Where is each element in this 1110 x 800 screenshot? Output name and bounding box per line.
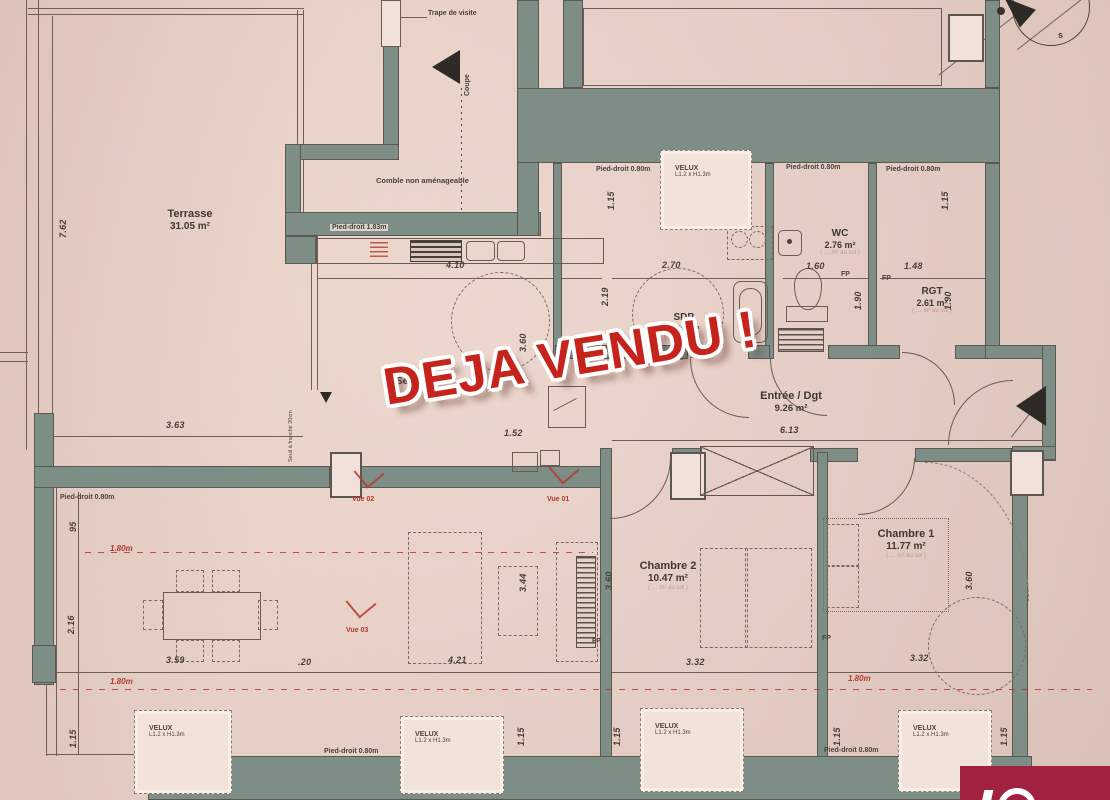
door-arc-entry [948, 380, 1013, 445]
dimension-label: 3.60 [604, 571, 614, 590]
velux-size: L1.2 x H1.3m [149, 732, 231, 738]
cooktop [410, 240, 462, 262]
roof-band [517, 88, 1000, 163]
velux-label: VELUX [655, 723, 743, 730]
door-arc-ch2 [610, 458, 671, 519]
section-arrow [432, 50, 460, 84]
dimension-label: 7.62 [58, 219, 68, 238]
dimension-label: 4.21 [448, 655, 467, 665]
wall-east [985, 163, 1000, 359]
section-label: Coupe [464, 74, 471, 96]
velux-window: VELUXL1.2 x H1.3m [640, 708, 744, 792]
upper-room-outline [583, 8, 942, 86]
dimension-label: 2.70 [662, 260, 681, 270]
line [46, 682, 47, 756]
line [56, 466, 57, 756]
dimension-label: 1.15 [606, 191, 616, 210]
compass-dot [997, 7, 1005, 15]
dim-line [880, 278, 985, 279]
pied-droit-label: Pied-droit 0.80m [886, 166, 940, 173]
sub: ( … m² au sol ) [858, 553, 954, 559]
pillow [827, 566, 859, 608]
wall [1012, 450, 1028, 760]
pied-droit-haut-label: Pied-droit 1.83m [330, 224, 388, 231]
duct-box [548, 386, 586, 428]
chair [258, 600, 278, 630]
dimension-label: 6.13 [780, 425, 799, 435]
room-wc: WC 2.76 m² ( … m² au sol ) [808, 228, 872, 256]
velux-label: VELUX [149, 725, 231, 732]
pillow [827, 524, 859, 566]
kitchen-red-marks [370, 242, 388, 258]
small-box [512, 452, 538, 472]
balcony-line [0, 361, 28, 362]
dimension-label: 1.15 [516, 727, 526, 746]
vanity-bowl [731, 231, 748, 248]
dim-line [78, 492, 79, 754]
hatch-label: Trape de visite [428, 10, 477, 17]
fp-label: FP [882, 275, 891, 282]
dimension-label: 4.10 [446, 260, 465, 270]
room-chambre2: Chambre 2 10.47 m² ( … m² au sol ) [618, 560, 718, 591]
closet [700, 446, 814, 496]
ar: 11.77 m² [858, 541, 954, 553]
access-hatch [381, 0, 401, 47]
wall [563, 0, 583, 88]
dimension-label: 1.52 [504, 428, 523, 438]
bed-line [745, 548, 748, 648]
velux-label: VELUX [415, 731, 503, 738]
dimension-label: 2.16 [66, 615, 76, 634]
room-rgt: RGT 2.61 m² ( … m² au sol ) [894, 286, 970, 314]
sink [466, 241, 495, 261]
dimension-label: 1.15 [999, 727, 1009, 746]
sink [497, 241, 525, 261]
pied-droit-label: Pied-droit 0.80m [324, 748, 378, 755]
pied-droit-label: Pied-droit 0.80m [596, 166, 650, 173]
velux-size: L1.2 x H1.3m [675, 172, 751, 178]
floor-plan: Coupe Trape de visite Comble non aménage… [0, 0, 1110, 800]
wall [383, 44, 399, 158]
nm: WC [808, 228, 872, 240]
nm: RGT [894, 286, 970, 298]
room-entree: Entrée / Dgt 9.26 m² [736, 390, 846, 414]
height-label: 1.80m [848, 674, 871, 683]
dim-line [55, 672, 1012, 673]
door-arc-rgt [902, 352, 955, 405]
vue-label: Vue 03 [346, 627, 368, 634]
compass-south-label: s [1058, 30, 1063, 40]
fp-label: FP [841, 271, 850, 278]
dimension-label: 1.15 [612, 727, 622, 746]
seuil-label: Seuil à franchir 20cm [288, 410, 294, 462]
dim-line [52, 16, 53, 436]
wall [32, 645, 56, 683]
velux-window: VELUXL1.2 x H1.3m [400, 716, 504, 794]
ar: 2.61 m² [894, 298, 970, 309]
dimension-label: 95 [68, 521, 78, 532]
nm: Entrée / Dgt [736, 390, 846, 403]
radiator [576, 556, 596, 648]
pied-droit-label: Pied-droit 0.80m [786, 164, 840, 171]
toilet-tank [786, 306, 828, 322]
dim-line [45, 436, 303, 437]
dining-table [163, 592, 261, 640]
velux-size: L1.2 x H1.3m [913, 732, 991, 738]
dimension-label: 3.44 [518, 573, 528, 592]
height-label: 1.80m [110, 544, 133, 553]
wall-post [1010, 450, 1044, 496]
dimension-label: 3.63 [166, 420, 185, 430]
dimension-label: 1.60 [806, 261, 825, 271]
velux-label: VELUX [913, 725, 991, 732]
roof-post [948, 14, 984, 62]
sub: ( … m² au sol ) [894, 308, 970, 314]
wall [285, 144, 399, 160]
sub: ( … m² au sol ) [618, 585, 718, 591]
height-label: 1.80m [110, 677, 133, 686]
velux-window: VELUXL1.2 x H1.3m [660, 150, 752, 230]
velux-label: VELUX [675, 165, 751, 172]
ar: 9.26 m² [736, 403, 846, 414]
rug-circle [928, 597, 1026, 695]
dimension-label: 1.48 [904, 261, 923, 271]
railing-line [26, 0, 27, 450]
dimension-label: 2.19 [600, 287, 610, 306]
sub: ( … m² au sol ) [808, 250, 872, 256]
fp-label: FP [822, 635, 831, 642]
room-chambre1: Chambre 1 11.77 m² ( … m² au sol ) [858, 528, 954, 559]
nm: Chambre 1 [858, 528, 954, 541]
dimension-label: 1.15 [68, 729, 78, 748]
section-line [461, 88, 462, 214]
velux-size: L1.2 x H1.3m [415, 738, 503, 744]
dimension-label: 1.15 [940, 191, 950, 210]
chair [212, 570, 240, 592]
wall [915, 448, 1012, 462]
ar: 2.76 m² [808, 240, 872, 251]
height-line [85, 552, 593, 553]
entry-arrow [1016, 386, 1046, 426]
terrace-edge [28, 14, 304, 15]
logo-glyph [980, 790, 994, 800]
door-arc-ch1 [858, 458, 915, 515]
vue-icon [346, 588, 377, 619]
vanity-bowl [749, 231, 766, 248]
dimension-label: 1.90 [853, 291, 863, 310]
dimension-label: .20 [298, 657, 311, 667]
toilet-bowl [794, 268, 822, 310]
dimension-label: 3.32 [910, 653, 929, 663]
wc-unit [778, 328, 824, 352]
ar: 10.47 m² [618, 573, 718, 585]
agency-logo [960, 766, 1110, 800]
partition [868, 163, 877, 359]
dimension-label: 1.90 [943, 291, 953, 310]
vue-label: Vue 01 [547, 496, 569, 503]
terrace-door-arrow [320, 392, 332, 403]
wall [285, 236, 317, 264]
comble-label: Comble non aménageable [376, 176, 469, 185]
chair [212, 640, 240, 662]
velux-size: L1.2 x H1.3m [655, 730, 743, 736]
basin-dot [787, 239, 792, 244]
wall-edge [303, 10, 304, 212]
dimension-label: 3.32 [686, 657, 705, 667]
fp-label: FP [592, 638, 601, 645]
height-line [60, 689, 1092, 690]
wall-kitchen-north [285, 212, 541, 236]
wall-mid [34, 466, 330, 488]
ar: 31.05 m² [140, 221, 240, 233]
dimension-label: 3.60 [964, 571, 974, 590]
logo-glyph [998, 788, 1036, 800]
velux-window: VELUXL1.2 x H1.3m [134, 710, 232, 794]
chair [176, 570, 204, 592]
pied-droit-label: Pied-droit 0.80m [824, 747, 878, 754]
nm: Chambre 2 [618, 560, 718, 573]
railing-line [38, 0, 39, 450]
room-terrasse: Terrasse 31.05 m² [140, 208, 240, 233]
leader-line [399, 17, 427, 18]
balcony-line [0, 352, 28, 353]
wall [828, 345, 900, 359]
dimension-label: 1.15 [832, 727, 842, 746]
pied-droit-label: Pied-droit 0.80m [60, 494, 114, 501]
chair [143, 600, 163, 630]
dimension-label: 3.59 [166, 655, 185, 665]
vue-label: Vue 02 [352, 496, 374, 503]
nm: Terrasse [140, 208, 240, 221]
terrace-edge [28, 8, 304, 9]
